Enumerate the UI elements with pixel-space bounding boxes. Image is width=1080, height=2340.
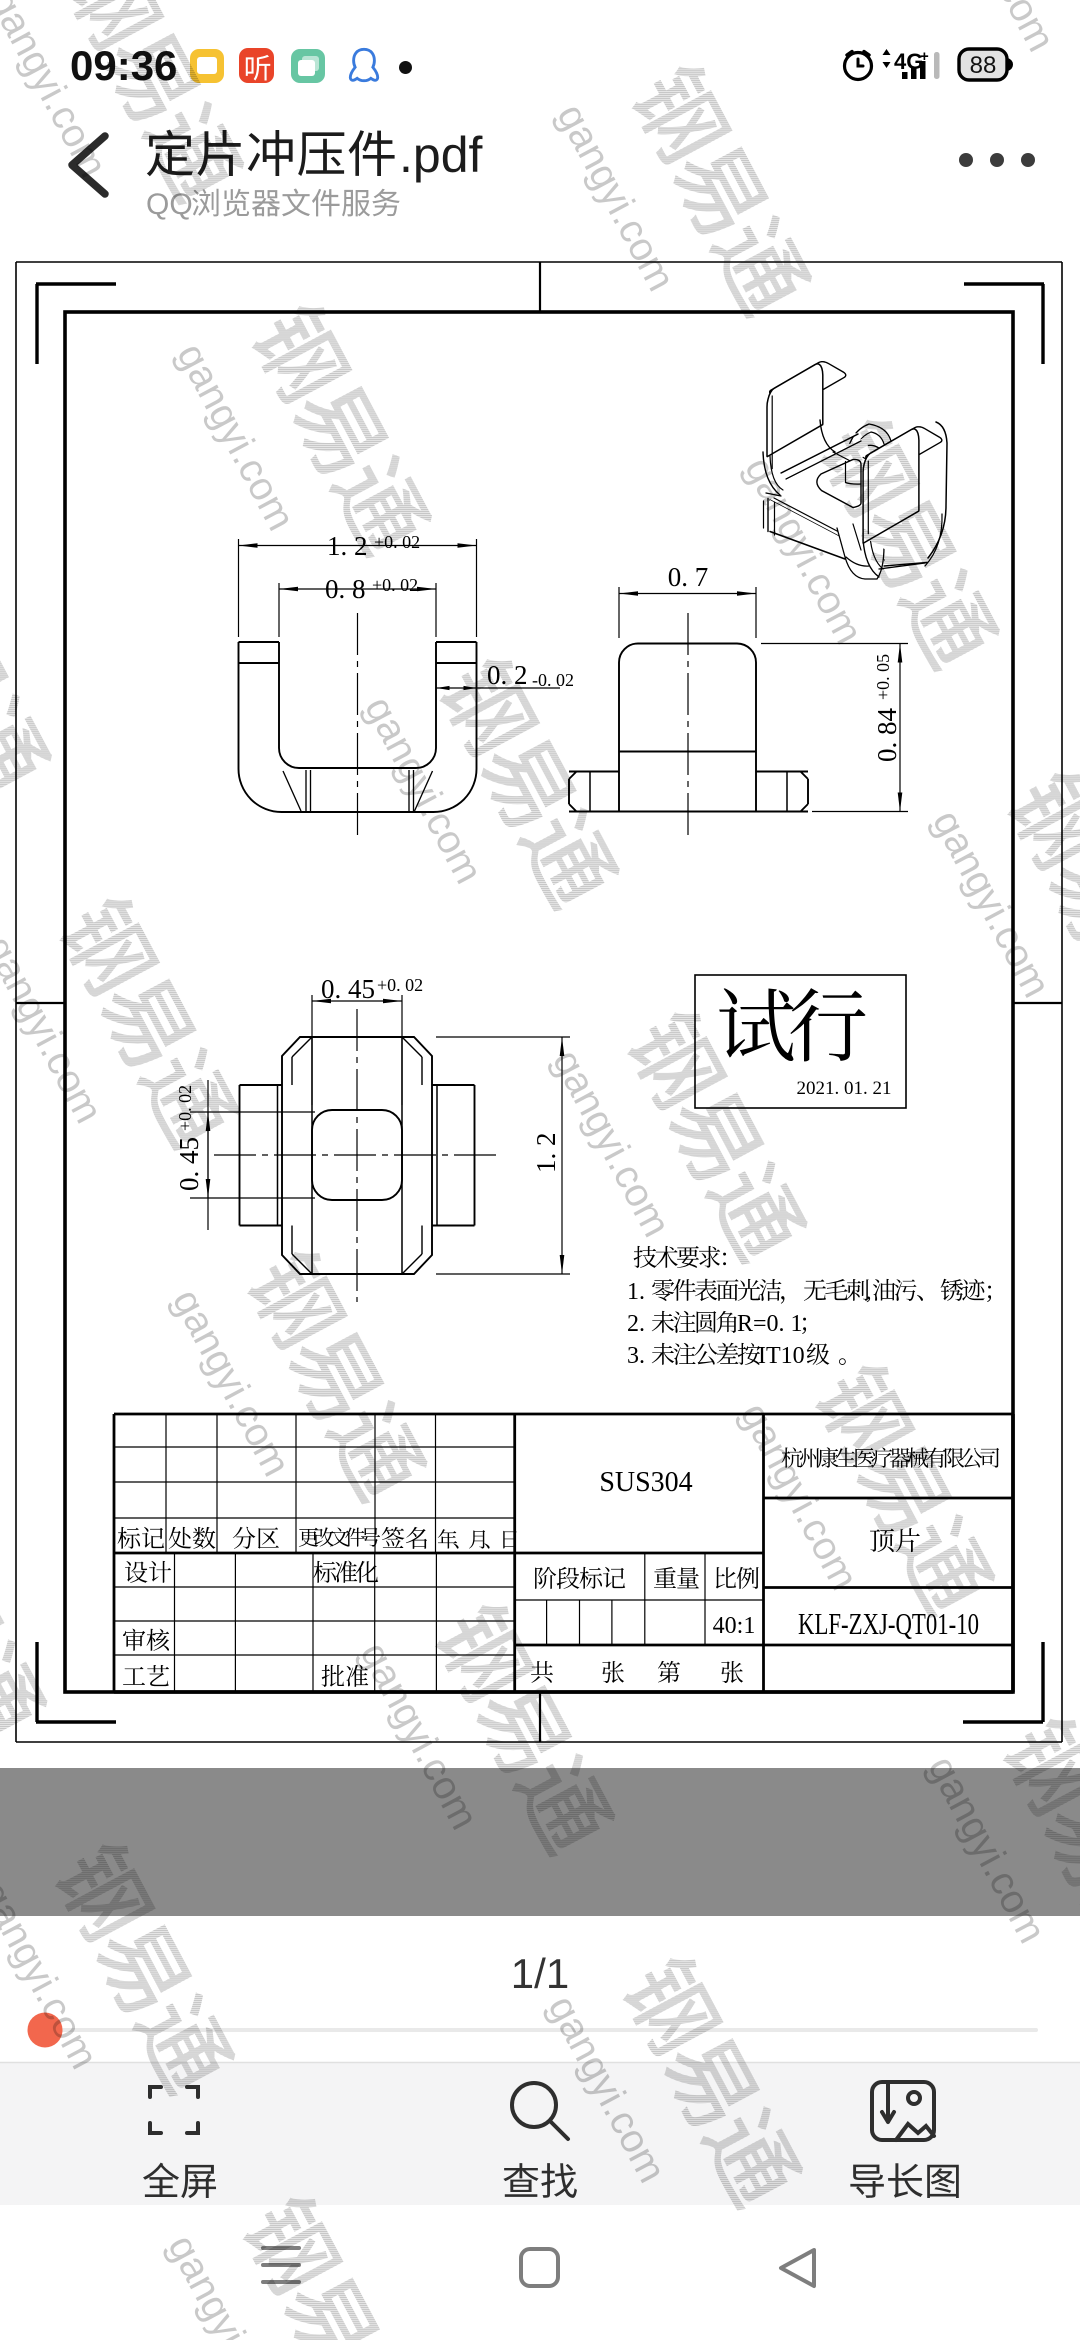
svg-text:KLF-ZXJ-QT01-10: KLF-ZXJ-QT01-10 [798, 1606, 979, 1641]
svg-text:1.: 1. [627, 1279, 645, 1305]
svg-text:2.: 2. [627, 1311, 645, 1337]
svg-text:0. 7: 0. 7 [668, 562, 709, 592]
svg-text:IT10: IT10 [758, 1343, 805, 1369]
svg-text:-0. 02: -0. 02 [532, 670, 574, 690]
svg-text:0. 45: 0. 45 [321, 974, 375, 1004]
svg-text:1/1: 1/1 [511, 1950, 569, 1997]
svg-text:1. 2: 1. 2 [327, 531, 368, 561]
svg-text:0. 84: 0. 84 [872, 708, 902, 763]
svg-text:+0. 02: +0. 02 [372, 575, 418, 595]
svg-text:+0. 02: +0. 02 [374, 532, 420, 552]
svg-text:QQ: QQ [146, 188, 193, 221]
svg-text:R=0. 1: R=0. 1 [737, 1311, 803, 1337]
svg-text:0. 2: 0. 2 [487, 660, 528, 690]
svg-text:.pdf: .pdf [399, 127, 483, 183]
svg-text:3.: 3. [627, 1343, 645, 1369]
svg-text:0. 8: 0. 8 [325, 574, 366, 604]
svg-text:2021. 01. 21: 2021. 01. 21 [797, 1078, 892, 1099]
svg-text:+0. 05: +0. 05 [873, 654, 893, 700]
svg-text:40:1: 40:1 [713, 1613, 756, 1639]
svg-text:+0. 02: +0. 02 [377, 975, 423, 995]
svg-text:1. 2: 1. 2 [531, 1133, 561, 1174]
svg-text:+0. 02: +0. 02 [175, 1085, 195, 1131]
svg-text:,: , [866, 1279, 872, 1304]
svg-text:4G: 4G [894, 49, 923, 74]
svg-text:88: 88 [970, 52, 997, 79]
svg-text:0. 45: 0. 45 [174, 1137, 204, 1191]
svg-text:SUS304: SUS304 [599, 1467, 692, 1498]
